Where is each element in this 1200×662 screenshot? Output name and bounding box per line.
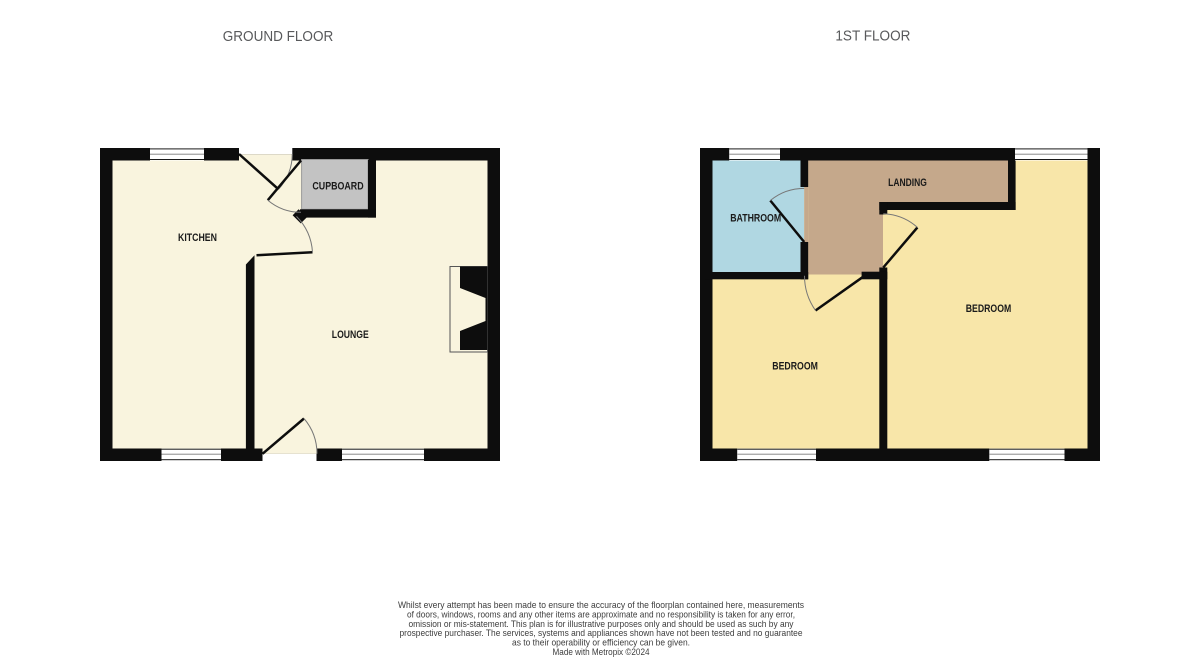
svg-text:KITCHEN: KITCHEN xyxy=(178,232,217,244)
svg-text:Made with Metropix ©2024: Made with Metropix ©2024 xyxy=(553,647,650,657)
svg-text:1ST FLOOR: 1ST FLOOR xyxy=(835,28,910,45)
svg-text:BEDROOM: BEDROOM xyxy=(966,303,1012,315)
svg-text:BEDROOM: BEDROOM xyxy=(772,360,818,372)
svg-text:CUPBOARD: CUPBOARD xyxy=(312,181,363,193)
svg-text:LOUNGE: LOUNGE xyxy=(332,329,369,341)
svg-text:GROUND FLOOR: GROUND FLOOR xyxy=(223,28,334,45)
svg-text:BATHROOM: BATHROOM xyxy=(730,212,781,224)
svg-text:LANDING: LANDING xyxy=(888,177,927,189)
